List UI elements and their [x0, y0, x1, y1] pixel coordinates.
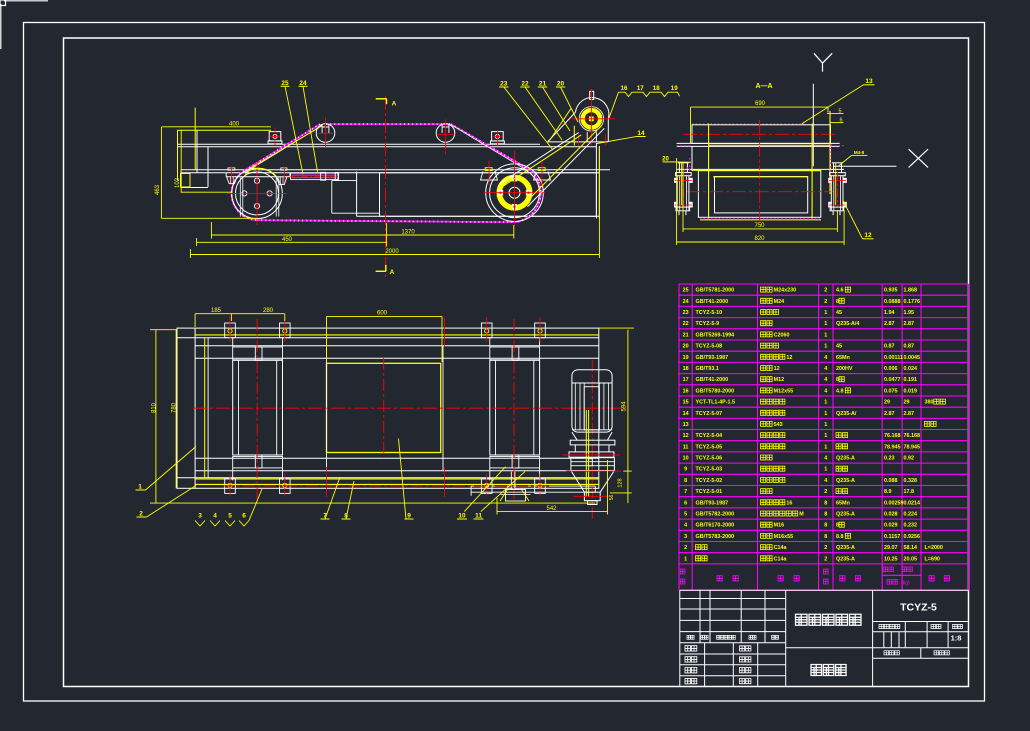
svg-text:280: 280 — [263, 308, 274, 314]
svg-text:200HV: 200HV — [836, 366, 853, 372]
svg-text:0.92: 0.92 — [904, 456, 915, 462]
svg-text:594: 594 — [622, 401, 628, 412]
svg-text:65Mn: 65Mn — [836, 500, 850, 506]
svg-text:2000: 2000 — [385, 249, 399, 255]
svg-text:4: 4 — [824, 355, 827, 361]
svg-text:15: 15 — [683, 400, 689, 406]
svg-text:12: 12 — [774, 366, 780, 372]
svg-text:2: 2 — [824, 556, 827, 562]
svg-text:810: 810 — [151, 402, 157, 413]
svg-text:1: 1 — [824, 344, 827, 350]
svg-text:1: 1 — [824, 400, 827, 406]
svg-text:690: 690 — [755, 101, 766, 107]
svg-text:20: 20 — [557, 81, 565, 88]
svg-text:450: 450 — [282, 237, 293, 243]
svg-text:L=690: L=690 — [925, 556, 940, 562]
svg-text:29.07: 29.07 — [884, 545, 898, 551]
svg-text:13: 13 — [865, 78, 873, 85]
svg-text:TCYZ-5-9: TCYZ-5-9 — [696, 321, 720, 327]
svg-text:M: M — [799, 512, 804, 518]
svg-text:8: 8 — [836, 299, 839, 305]
svg-text:0.0214: 0.0214 — [904, 500, 921, 506]
svg-text:TCYZ-5-10: TCYZ-5-10 — [696, 310, 723, 316]
svg-text:A—A: A—A — [755, 83, 772, 90]
svg-text:820: 820 — [754, 236, 765, 242]
svg-text:543: 543 — [774, 422, 783, 428]
svg-text:Q235-A: Q235-A — [836, 456, 855, 462]
svg-text:TCYZ-5-08: TCYZ-5-08 — [696, 344, 723, 350]
svg-text:GB/T93.1: GB/T93.1 — [696, 366, 719, 372]
svg-text:GB/T93-1987: GB/T93-1987 — [696, 500, 729, 506]
svg-text:2: 2 — [824, 489, 827, 495]
svg-text:0.019: 0.019 — [904, 388, 918, 394]
svg-text:78.945: 78.945 — [884, 444, 901, 450]
svg-text:17: 17 — [637, 85, 644, 92]
svg-text:780: 780 — [172, 402, 178, 413]
svg-text:0.9256: 0.9256 — [904, 534, 921, 540]
svg-text:1.95: 1.95 — [904, 310, 915, 316]
svg-text:750: 750 — [754, 223, 765, 229]
svg-text:TCYZ-5-01: TCYZ-5-01 — [696, 489, 723, 495]
svg-text:8: 8 — [824, 500, 827, 506]
svg-text:25: 25 — [683, 288, 689, 294]
svg-text:0.088: 0.088 — [884, 478, 898, 484]
svg-text:542: 542 — [546, 506, 557, 512]
svg-text:6: 6 — [684, 500, 687, 506]
svg-text:185: 185 — [211, 308, 222, 314]
svg-text:M24: M24 — [774, 299, 785, 305]
svg-text:GB/T5783-2000: GB/T5783-2000 — [696, 534, 735, 540]
svg-text:2: 2 — [824, 288, 827, 294]
svg-text:22: 22 — [521, 81, 529, 88]
svg-text:9: 9 — [684, 467, 687, 473]
svg-text:1: 1 — [684, 556, 687, 562]
svg-text:0.075: 0.075 — [884, 388, 898, 394]
svg-text:1: 1 — [824, 433, 827, 439]
svg-text:600: 600 — [377, 311, 388, 317]
svg-text:1: 1 — [824, 321, 827, 327]
svg-text:8.8: 8.8 — [836, 534, 844, 540]
svg-text:10: 10 — [458, 513, 466, 520]
svg-text:C14a: C14a — [774, 556, 788, 562]
svg-text:2: 2 — [139, 511, 143, 518]
svg-text:400: 400 — [229, 121, 240, 127]
svg-text:(kg): (kg) — [901, 580, 910, 586]
svg-text:5: 5 — [684, 512, 687, 518]
svg-text:102: 102 — [175, 177, 181, 188]
svg-text:3: 3 — [198, 513, 202, 520]
svg-text:12: 12 — [864, 232, 872, 239]
svg-text:1:8: 1:8 — [951, 634, 962, 643]
svg-text:18: 18 — [683, 366, 689, 372]
svg-text:Q235-A: Q235-A — [836, 512, 855, 518]
svg-text:TCYZ-5-03: TCYZ-5-03 — [696, 467, 723, 473]
svg-text:0.87: 0.87 — [884, 344, 895, 350]
svg-text:A: A — [392, 101, 397, 108]
svg-text:GB/T6170-2000: GB/T6170-2000 — [696, 523, 735, 529]
svg-text:0.23: 0.23 — [884, 456, 895, 462]
svg-text:M4-8: M4-8 — [854, 150, 865, 155]
svg-text:23: 23 — [500, 81, 508, 88]
svg-text:45: 45 — [836, 344, 842, 350]
svg-text:14: 14 — [683, 411, 689, 417]
svg-text:16: 16 — [621, 85, 628, 92]
svg-text:C2060: C2060 — [774, 332, 790, 338]
svg-text:1370: 1370 — [401, 230, 415, 236]
svg-text:22: 22 — [683, 321, 689, 327]
svg-text:21: 21 — [683, 332, 689, 338]
svg-text:76.168: 76.168 — [884, 433, 901, 439]
svg-text:GB/T5781-2000: GB/T5781-2000 — [696, 288, 735, 294]
svg-text:1.94: 1.94 — [884, 310, 895, 316]
svg-text:0.232: 0.232 — [904, 523, 918, 529]
svg-text:1: 1 — [824, 467, 827, 473]
svg-text:TCYZ-5-02: TCYZ-5-02 — [696, 478, 723, 484]
svg-text:0.1157: 0.1157 — [884, 534, 900, 540]
svg-text:8: 8 — [824, 534, 827, 540]
svg-text:23: 23 — [683, 310, 689, 316]
svg-text:M16x55: M16x55 — [774, 534, 793, 540]
svg-text:0.006: 0.006 — [884, 366, 898, 372]
svg-text:0.935: 0.935 — [884, 288, 898, 294]
svg-text:5: 5 — [228, 513, 232, 520]
svg-text:0.00111: 0.00111 — [884, 355, 903, 361]
svg-text:17.8: 17.8 — [904, 489, 915, 495]
svg-text:3: 3 — [684, 534, 687, 540]
svg-text:Q235-A: Q235-A — [836, 478, 855, 484]
svg-text:TCYZ-5-06: TCYZ-5-06 — [696, 456, 723, 462]
svg-text:2.87: 2.87 — [904, 411, 915, 417]
svg-text:8.9: 8.9 — [884, 489, 892, 495]
svg-text:8: 8 — [824, 512, 827, 518]
svg-text:GB/T41-2000: GB/T41-2000 — [696, 377, 729, 383]
svg-text:Q235-A/4: Q235-A/4 — [836, 321, 859, 327]
svg-text:1: 1 — [824, 444, 827, 450]
svg-text:0.024: 0.024 — [904, 366, 918, 372]
svg-text:76.168: 76.168 — [904, 433, 921, 439]
svg-text:0.028: 0.028 — [884, 512, 898, 518]
svg-text:Q235-A: Q235-A — [836, 545, 855, 551]
svg-text:16: 16 — [683, 388, 689, 394]
svg-text:18: 18 — [653, 85, 660, 92]
svg-text:9: 9 — [407, 513, 411, 520]
svg-text:L=2000: L=2000 — [925, 545, 943, 551]
svg-text:65Mn: 65Mn — [836, 355, 850, 361]
svg-text:14: 14 — [637, 130, 645, 137]
svg-text:0.0888: 0.0888 — [884, 299, 901, 305]
svg-text:380: 380 — [925, 400, 934, 406]
svg-text:17: 17 — [683, 377, 689, 383]
svg-text:8: 8 — [824, 523, 827, 529]
svg-text:0.0477: 0.0477 — [884, 377, 901, 383]
svg-text:11: 11 — [683, 444, 689, 450]
svg-text:Q235-A/: Q235-A/ — [836, 411, 857, 417]
svg-text:0.87: 0.87 — [904, 344, 915, 350]
svg-text:TCYZ-5-04: TCYZ-5-04 — [696, 433, 723, 439]
svg-text:2: 2 — [684, 545, 687, 551]
svg-text:4: 4 — [213, 513, 217, 520]
svg-text:TCYZ-5-07: TCYZ-5-07 — [696, 411, 723, 417]
svg-text:58.14: 58.14 — [904, 545, 918, 551]
svg-text:12: 12 — [786, 355, 792, 361]
svg-text:1: 1 — [824, 422, 827, 428]
svg-text:4: 4 — [684, 523, 687, 529]
svg-text:M24x230: M24x230 — [774, 288, 796, 294]
svg-text:4.6: 4.6 — [836, 288, 844, 294]
svg-text:TCYZ-5-05: TCYZ-5-05 — [696, 444, 723, 450]
svg-text:4: 4 — [824, 478, 827, 484]
svg-text:8: 8 — [836, 377, 839, 383]
svg-text:11: 11 — [475, 513, 482, 520]
svg-text:2.87: 2.87 — [884, 321, 895, 327]
svg-text:29: 29 — [904, 400, 910, 406]
svg-text:M16: M16 — [774, 523, 785, 529]
svg-text:0.191: 0.191 — [904, 377, 918, 383]
svg-text:21: 21 — [539, 81, 547, 88]
svg-text:463: 463 — [155, 184, 161, 195]
svg-text:4: 4 — [824, 456, 827, 462]
svg-text:0.029: 0.029 — [884, 523, 898, 529]
svg-text:GB/T93-1987: GB/T93-1987 — [696, 355, 729, 361]
svg-text:0.1776: 0.1776 — [904, 299, 921, 305]
svg-text:2: 2 — [824, 545, 827, 551]
svg-text:1: 1 — [824, 411, 827, 417]
svg-text:4: 4 — [824, 366, 827, 372]
svg-text:6: 6 — [242, 513, 246, 520]
svg-text:M12: M12 — [774, 377, 785, 383]
svg-text:2.87: 2.87 — [884, 411, 895, 417]
svg-text:128: 128 — [618, 478, 624, 487]
svg-text:2: 2 — [824, 299, 827, 305]
svg-text:1.868: 1.868 — [904, 288, 918, 294]
svg-text:19: 19 — [671, 85, 678, 92]
svg-text:0.224: 0.224 — [904, 512, 918, 518]
svg-text:16: 16 — [786, 500, 792, 506]
svg-text:20.05: 20.05 — [904, 556, 918, 562]
svg-text:24: 24 — [683, 299, 689, 305]
svg-text:12: 12 — [683, 433, 689, 439]
svg-text:GB/T5780-2000: GB/T5780-2000 — [696, 388, 735, 394]
svg-text:78.945: 78.945 — [904, 444, 921, 450]
svg-text:13: 13 — [683, 422, 689, 428]
svg-text:8: 8 — [684, 478, 687, 484]
svg-text:45: 45 — [836, 310, 842, 316]
svg-text:GB/T5269-1994: GB/T5269-1994 — [696, 332, 735, 338]
svg-text:29: 29 — [884, 400, 890, 406]
svg-text:4: 4 — [824, 388, 827, 394]
svg-text:GB/T41-2000: GB/T41-2000 — [696, 299, 729, 305]
svg-text:7: 7 — [684, 489, 687, 495]
svg-text:4: 4 — [824, 377, 827, 383]
svg-text:1: 1 — [138, 484, 142, 491]
svg-text:YCT-TL1-4P-1.5: YCT-TL1-4P-1.5 — [696, 400, 736, 406]
svg-text:4.8: 4.8 — [836, 388, 844, 394]
svg-text:GB/T5782-2000: GB/T5782-2000 — [696, 512, 735, 518]
svg-text:0.00259: 0.00259 — [884, 500, 904, 506]
svg-text:C14a: C14a — [774, 545, 788, 551]
svg-text:19: 19 — [683, 355, 689, 361]
svg-text:56: 56 — [609, 495, 615, 501]
svg-text:10: 10 — [683, 456, 689, 462]
svg-text:1: 1 — [824, 332, 827, 338]
svg-text:M12x55: M12x55 — [774, 388, 793, 394]
svg-text:20: 20 — [683, 344, 689, 350]
svg-text:1: 1 — [824, 310, 827, 316]
svg-text:10.25: 10.25 — [884, 556, 898, 562]
svg-text:Q235-A: Q235-A — [836, 556, 855, 562]
svg-text:2.87: 2.87 — [904, 321, 915, 327]
svg-text:8: 8 — [836, 523, 839, 529]
svg-text:A: A — [390, 269, 395, 276]
svg-text:0.0045: 0.0045 — [904, 355, 921, 361]
svg-text:TCYZ-5: TCYZ-5 — [900, 602, 937, 614]
svg-text:0.328: 0.328 — [904, 478, 918, 484]
